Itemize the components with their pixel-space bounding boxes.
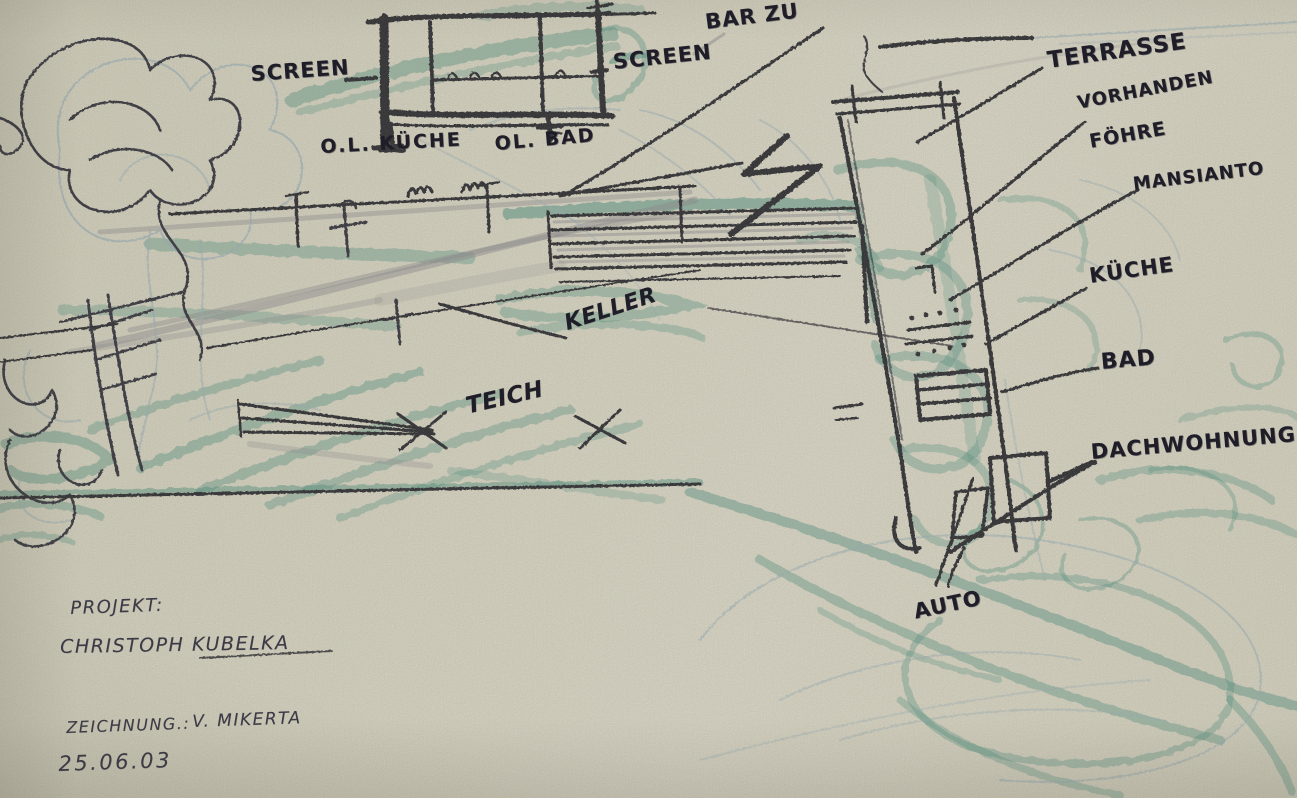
sketch-drawing: [0, 0, 1297, 798]
paper-grain: [0, 0, 1297, 798]
drawing-date: 25.06.03: [58, 750, 172, 775]
project-label: PROJEKT:: [70, 597, 164, 618]
label-bad: BAD: [1100, 347, 1157, 374]
sketch-photo: SCREEN SCREEN BAR ZU O.L. KÜCHE OL. BAD …: [0, 0, 1297, 798]
drawing-label: ZEICHNUNG.:: [66, 716, 190, 736]
project-name: CHRISTOPH KUBELKA: [60, 634, 290, 657]
drawing-author: V. MIKERTA: [192, 710, 302, 731]
